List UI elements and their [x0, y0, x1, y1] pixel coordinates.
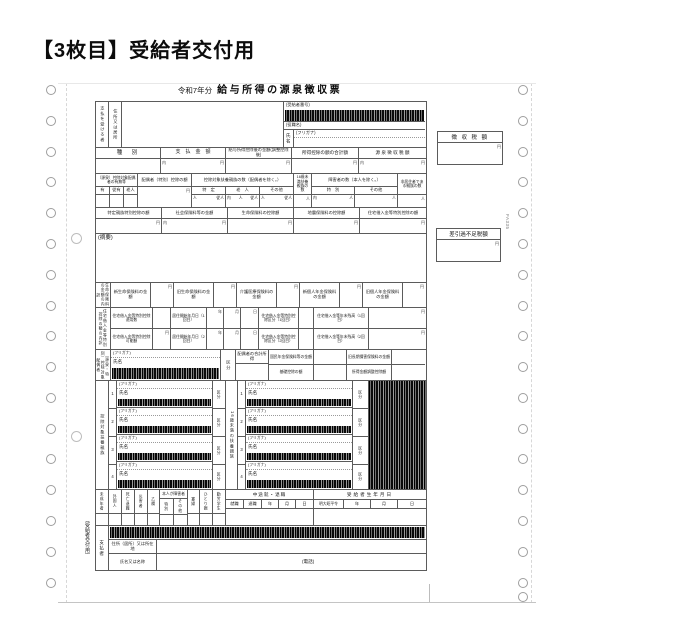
col-payment-label: 支 払 金 額 — [161, 148, 225, 159]
name-label: 氏名 — [117, 389, 212, 398]
name-label: 氏名 — [111, 358, 220, 367]
tractor-hole — [518, 393, 528, 403]
single-parent-flag-label: ひとり親 — [204, 492, 208, 511]
masked-spouse-name — [112, 368, 219, 379]
unit-person: 人 — [349, 196, 353, 207]
tractor-hole — [518, 547, 528, 557]
yen-mark: 円 — [220, 160, 224, 166]
yen-mark: 円 — [288, 220, 292, 226]
sub-label: 日 — [296, 500, 313, 508]
unit-person: 人 — [261, 196, 265, 207]
care-medical-insurance-label: 介護医療保険料の金額 — [237, 283, 277, 307]
payer-name-label: 氏名又は名称 — [109, 554, 157, 570]
tractor-hole — [46, 547, 56, 557]
kubun-label: 区分 — [358, 390, 362, 400]
yen-mark: 円 — [421, 309, 425, 315]
masked-dependent-name — [247, 426, 351, 433]
furigana-label: (フリガナ) — [117, 462, 212, 470]
tractor-hole — [46, 116, 56, 126]
self-disabled-label: 本人が障害者 — [160, 490, 187, 499]
widow-flag-label: 寡婦 — [191, 497, 195, 507]
unit-uchi: 内 — [227, 196, 231, 207]
masked-dependent-name — [118, 453, 211, 460]
dependents-group-label: 控除対象扶養親族 — [100, 414, 105, 456]
earthquake-insurance-label: 地震保険料の控除額 — [294, 208, 359, 219]
kubun-label: 区分 — [217, 472, 221, 482]
housing-loan-deduction-label: 住宅借入金等特別控除の額 — [360, 208, 426, 219]
sub-label: その他 — [178, 499, 182, 513]
form-table: 支払を受ける者 住所又は居所 (受給者番号) (役職名) 氏名 (フリガナ) 種… — [95, 101, 427, 571]
remarks-row: (摘要) — [96, 234, 426, 283]
perforation-line-right — [531, 83, 532, 603]
life-insurance-breakdown-row: 生命保険料の金額の内訳 新生命保険料の金額 円 旧生命保険料の金額 円 介護医療… — [96, 283, 426, 308]
punch-hole — [71, 431, 82, 442]
old-longterm-insurance-label: 旧長期損害保険料の金額 — [347, 350, 392, 364]
sub-label: 日 — [398, 500, 426, 508]
name-label: 氏名 — [246, 470, 352, 479]
yen-mark: 円 — [421, 160, 425, 166]
tractor-hole — [46, 454, 56, 464]
recipient-row: 支払を受ける者 住所又は居所 (受給者番号) (役職名) 氏名 (フリガナ) — [96, 102, 426, 148]
sub-label: 老人 — [124, 187, 137, 194]
paper-edge-dash — [429, 584, 430, 602]
remarks-label: (摘要) — [96, 234, 426, 242]
masked-dependent-name — [118, 399, 211, 406]
name-label: 氏名 — [117, 470, 212, 479]
unit-person: 人 — [392, 196, 396, 201]
midyear-label: 中途就・退職 — [226, 490, 313, 500]
sub-label: 退職 — [244, 500, 262, 508]
unit-day: 日 — [253, 330, 257, 336]
tractor-hole — [46, 331, 56, 341]
row-number: 2 — [238, 409, 245, 437]
pension-premium-label: 国民年金保険料等の金額 — [269, 350, 314, 364]
uchi-mark: 内 — [162, 160, 166, 166]
form-title-text: 給与所得の源泉徴収票 — [217, 85, 342, 96]
perforation-line-left — [66, 83, 67, 603]
tractor-hole — [518, 85, 528, 95]
unit-person: 人 — [239, 196, 243, 207]
life-breakdown-group-label: 生命保険料の金額の内訳 — [96, 283, 109, 307]
tractor-hole — [518, 270, 528, 280]
yen-mark: 円 — [357, 284, 361, 290]
paper-bottom-edge — [58, 602, 536, 603]
row-number: 3 — [238, 437, 245, 465]
col-after-deduction-label: 給与所得控除後の金額(調整控除後) — [226, 148, 291, 159]
special-relative-deduction-label: 特定親族特別控除の額 — [96, 208, 161, 219]
sub-label: 特 定 — [192, 187, 226, 194]
tractor-hole — [518, 301, 528, 311]
spouse-details-row: （源泉・特別）控除対象配偶者 (フリガナ) 氏名 区分 配偶者の合計所得 国民年… — [96, 350, 426, 381]
yen-mark: 円 — [420, 284, 424, 290]
tractor-hole — [46, 516, 56, 526]
sub-label: 月 — [279, 500, 296, 508]
status-row: 未成年者 外国人 死亡退職 災害者 乙欄 本人が障害者 特別 その他 寡婦 ひと… — [96, 490, 426, 526]
unit-day: 日 — [253, 309, 257, 315]
minor-flag-label: 未成年者 — [100, 492, 104, 511]
housing-balance-2-label: 住宅借入金等年末残高（2回目） — [314, 329, 369, 349]
copy-purpose-label: (受給者交付用) — [84, 521, 91, 577]
furigana-label: (フリガナ) — [117, 381, 212, 389]
kubun-label: 区分 — [358, 446, 362, 456]
kubun-label: 区分 — [217, 446, 221, 456]
residence-start-2-label: 居住開始年月日（2回目） — [171, 329, 207, 349]
yen-mark: 円 — [286, 160, 290, 166]
row-number: 4 — [238, 465, 245, 489]
sub-label: 年 — [262, 500, 279, 508]
unit-person: 人 — [193, 196, 197, 207]
uchi-mark: 内 — [360, 160, 364, 166]
tractor-hole — [518, 516, 528, 526]
sub-label: 月 — [371, 500, 398, 508]
unit-uchi: 内 — [313, 196, 317, 207]
deductions-row: 特定親族特別控除の額 円 社会保険料等の金額 内円 生命保険料の控除額 円 地震… — [96, 208, 426, 234]
tractor-hole — [46, 270, 56, 280]
masked-dependent-name — [247, 399, 351, 406]
housing-possible-amount-label: 住宅借入金等特別控除可能額 — [111, 329, 153, 349]
tractor-hole — [46, 301, 56, 311]
disaster-flag-label: 災害者 — [139, 494, 143, 508]
era-label: 明大昭平令 — [314, 500, 344, 508]
housing-balance-1-label: 住宅借入金等年末残高（1回目） — [314, 308, 369, 328]
tractor-hole — [46, 177, 56, 187]
tractor-hole — [518, 116, 528, 126]
kubun-label: 区分 — [358, 472, 362, 482]
tractor-hole — [46, 208, 56, 218]
masked-id-strip — [285, 110, 424, 121]
furigana-label: (フリガナ) — [117, 435, 212, 443]
unit-month: 月 — [235, 330, 239, 336]
housing-kubun-1-label: 住宅借入金等特別控除区分（1回目） — [259, 308, 299, 328]
yen-mark: 円 — [168, 284, 172, 290]
tractor-hole — [518, 485, 528, 495]
yen-mark: 円 — [497, 144, 501, 150]
masked-dependent-name — [118, 426, 211, 433]
foreigner-flag-label: 外国人 — [113, 494, 117, 508]
under16-count-label: 16歳未満扶養親族の数 — [294, 174, 311, 195]
sub-label: 有 — [96, 187, 110, 194]
punch-hole — [71, 233, 82, 244]
sub-label: 特 別 — [312, 187, 355, 194]
housing-kubun-2-label: 住宅借入金等特別控除区分（2回目） — [259, 329, 299, 349]
col-type-label: 種 別 — [96, 148, 160, 159]
tractor-hole — [518, 239, 528, 249]
balance-tax-label: 差引過不足税額 — [437, 229, 500, 240]
tractor-hole — [46, 424, 56, 434]
masked-payer-id — [110, 527, 425, 538]
disabled-count-label: 障害者の数（本人を除く。） — [312, 174, 397, 187]
residence-start-1-label: 居住開始年月日（1回目） — [171, 308, 207, 328]
name-label: 氏名 — [246, 389, 352, 398]
unit-person: 人 — [421, 196, 425, 202]
sub-label: 従有 — [110, 187, 124, 194]
furigana-label: (フリガナ) — [246, 381, 352, 389]
payee-address-area — [122, 102, 284, 147]
row-number: 1 — [109, 381, 116, 409]
withholding-slip-form: 令和7年分給与所得の源泉徴収票 支払を受ける者 住所又は居所 (受給者番号) (… — [95, 80, 426, 571]
tractor-hole — [518, 177, 528, 187]
sub-label: 特別 — [164, 502, 168, 512]
furigana-label: (フリガナ) — [294, 130, 425, 138]
recipient-number-label: (受給者番号) — [284, 102, 425, 110]
uchi-mark: 内 — [163, 220, 167, 226]
unit-juunin: 従人 — [250, 196, 258, 207]
kubun-label: 区分 — [358, 418, 362, 428]
masked-dependent-name — [247, 480, 351, 488]
balance-tax-box: 差引過不足税額 円 — [436, 228, 501, 262]
basic-deduction-label: 基礎控除の額 — [269, 365, 314, 380]
role-label: (役職名) — [284, 121, 425, 130]
furigana-label: (フリガナ) — [117, 408, 212, 416]
kubun-label: 区分 — [217, 390, 221, 400]
life-insurance-deduction-label: 生命保険料の控除額 — [228, 208, 293, 219]
page-title: 【3枚目】受給者交付用 — [33, 34, 255, 63]
yen-mark: 円 — [354, 220, 358, 226]
yen-mark: 円 — [495, 241, 499, 247]
yen-mark: 円 — [421, 220, 425, 226]
furigana-label: (フリガナ) — [246, 462, 352, 470]
spouse-deduction-label: 配偶者（特別）控除の額 — [138, 174, 191, 187]
housing-loan-breakdown-row: 住宅借入金等特別控除の額の内訳 住宅借入金等特別控除適用数 居住開始年月日（1回… — [96, 308, 426, 350]
birthdate-label: 受給者生年月日 — [314, 490, 426, 500]
masked-dependent-name — [247, 453, 351, 460]
yen-mark: 円 — [294, 284, 298, 290]
kubun-label: 区分 — [217, 418, 221, 428]
yen-mark: 円 — [353, 160, 357, 166]
amounts-row: 種 別 支 払 金 額 内円 給与所得控除後の金額(調整控除後) 円 所得控除の… — [96, 148, 426, 174]
unit-juunin: 従人 — [216, 196, 224, 207]
sub-label: 年 — [344, 500, 371, 508]
yen-mark: 円 — [156, 220, 160, 226]
spouse-income-label: 配偶者の合計所得 — [236, 350, 268, 364]
furigana-label: (フリガナ) — [111, 350, 220, 358]
withholding-tax-label: 徴 収 税 額 — [438, 132, 502, 143]
col-withheld-tax-label: 源 泉 徴 収 税 額 — [359, 148, 426, 159]
spouse-group-label: （源泉・特別）控除対象配偶者 — [96, 350, 109, 380]
col-total-deductions-label: 所得控除の額の合計額 — [292, 148, 358, 159]
unit-person: 人 — [306, 196, 310, 202]
tractor-hole — [518, 424, 528, 434]
sub-label: 就職 — [226, 500, 244, 508]
working-student-flag-label: 勤労学生 — [217, 492, 221, 511]
payer-row: 支払者 住所（居所）又は所在地 氏名又は名称 (電話) — [96, 526, 426, 570]
spouse-presence-label: （源泉）控除対象配偶者の有無等 — [96, 174, 137, 187]
form-title: 令和7年分給与所得の源泉徴収票 — [95, 80, 425, 98]
unit-juunin: 従人 — [284, 196, 292, 207]
form-code: FA335 — [505, 214, 510, 230]
housing-apply-count-label: 住宅借入金等特別控除適用数 — [111, 308, 153, 328]
sub-label: 老 人 — [226, 187, 260, 194]
counts-row: （源泉）控除対象配偶者の有無等 有 従有 老人 配偶者（特別）控除の額 円 控除… — [96, 174, 426, 208]
tractor-hole — [46, 393, 56, 403]
masked-block — [369, 381, 426, 489]
new-life-insurance-label: 新生命保険料の金額 — [111, 283, 151, 307]
form-era: 令和7年分 — [178, 86, 212, 95]
name-label: 氏名 — [117, 416, 212, 425]
death-retirement-flag-label: 死亡退職 — [126, 492, 130, 511]
withholding-tax-box: 徴 収 税 額 円 — [437, 131, 503, 165]
tractor-hole — [46, 485, 56, 495]
tractor-hole — [518, 147, 528, 157]
name-label: 氏名 — [246, 443, 352, 452]
yen-mark: 円 — [165, 330, 169, 336]
row-number: 4 — [109, 465, 116, 489]
name-label: 氏名 — [286, 133, 291, 144]
tractor-hole — [518, 578, 528, 588]
nonresident-count-label: 非居住者である親族の数 — [398, 174, 426, 195]
payee-label: 支払を受ける者 — [100, 106, 105, 142]
payer-group-label: 支払者 — [99, 540, 104, 557]
housing-breakdown-group-label: 住宅借入金等特別控除の額の内訳 — [99, 308, 108, 349]
unit-month: 月 — [235, 309, 239, 315]
row-number: 1 — [238, 381, 245, 409]
tractor-hole — [518, 208, 528, 218]
tractor-hole — [46, 578, 56, 588]
tractor-hole — [46, 362, 56, 372]
social-insurance-label: 社会保険料等の金額 — [162, 208, 227, 219]
scanned-withholding-slip-page: { "heading": "【3枚目】受給者交付用", "side": { "b… — [0, 0, 700, 639]
sub-label: その他 — [355, 187, 397, 194]
row-number: 2 — [109, 409, 116, 437]
dependents-row: 控除対象扶養親族 1 2 3 4 (フリガナ)氏名 (フリガナ)氏名 (フリガナ… — [96, 381, 426, 490]
payee-address-label: 住所又は居所 — [113, 109, 118, 140]
row-number: 3 — [109, 437, 116, 465]
yen-mark: 円 — [421, 330, 425, 336]
under16-group-label: 16歳未満の扶養親族 — [229, 411, 234, 459]
phone-label: (電話) — [302, 559, 314, 564]
old-annuity-insurance-label: 旧個人年金保険料の金額 — [363, 283, 403, 307]
otsu-column-flag-label: 乙欄 — [151, 497, 155, 507]
furigana-label: (フリガナ) — [246, 408, 352, 416]
unit-year: 年 — [218, 309, 222, 315]
payer-address-label: 住所（居所）又は所在地 — [109, 540, 157, 553]
tractor-hole — [518, 362, 528, 372]
tractor-hole — [518, 331, 528, 341]
tractor-hole — [46, 239, 56, 249]
yen-mark: 円 — [231, 284, 235, 290]
kubun-label: 区分 — [226, 360, 231, 370]
furigana-label: (フリガナ) — [246, 435, 352, 443]
new-annuity-insurance-label: 新個人年金保険料の金額 — [300, 283, 340, 307]
tractor-hole — [46, 147, 56, 157]
tractor-hole — [518, 454, 528, 464]
tractor-hole — [46, 85, 56, 95]
yen-mark: 円 — [222, 220, 226, 226]
sub-label: その他 — [260, 187, 293, 194]
dependents-count-label: 控除対象扶養親族の数（配偶者を除く。） — [192, 174, 293, 187]
income-adjustment-label: 所得金額調整控除額 — [347, 365, 392, 380]
masked-dependent-name — [118, 480, 211, 488]
yen-mark: 円 — [186, 188, 190, 194]
unit-year: 年 — [218, 330, 222, 336]
name-label: 氏名 — [117, 443, 212, 452]
tractor-hole — [518, 592, 528, 602]
old-life-insurance-label: 旧生命保険料の金額 — [174, 283, 214, 307]
name-label: 氏名 — [246, 416, 352, 425]
